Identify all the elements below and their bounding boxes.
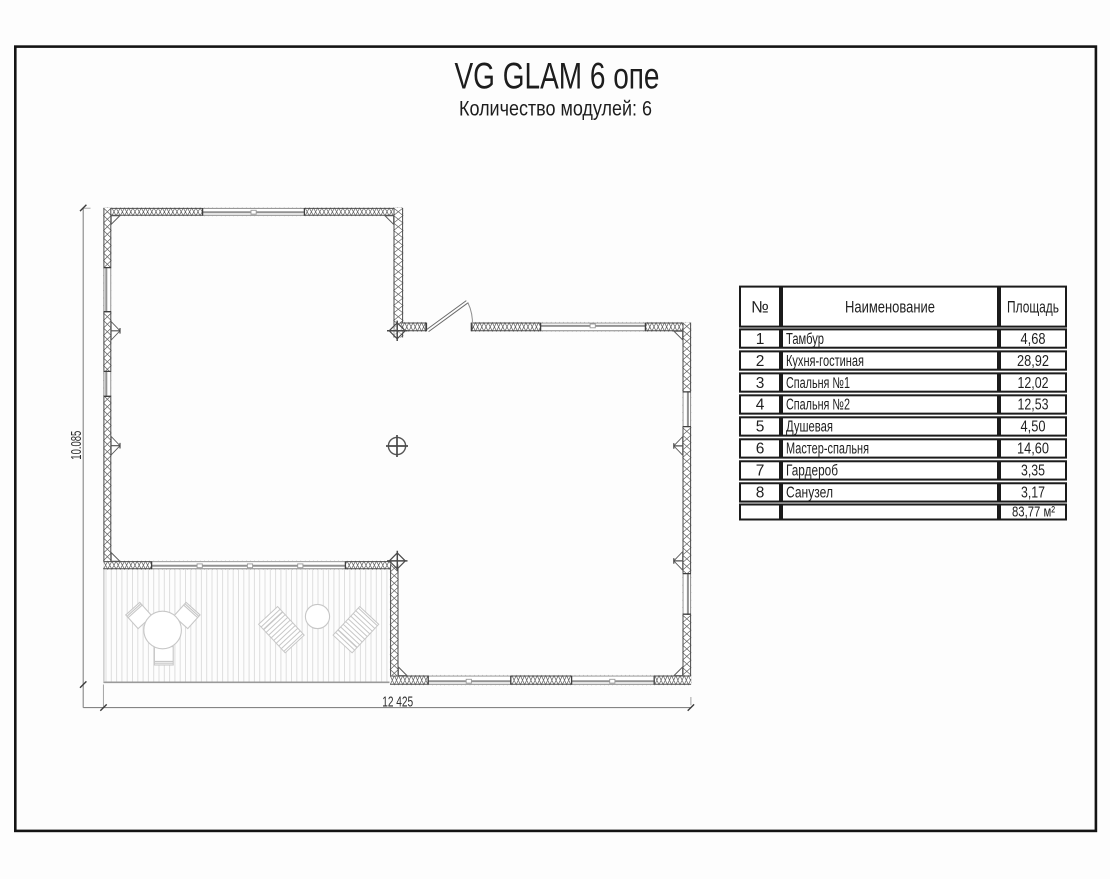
svg-text:№: № (751, 299, 769, 317)
svg-text:4: 4 (756, 397, 765, 414)
svg-text:14,60: 14,60 (1017, 441, 1049, 458)
svg-text:5: 5 (756, 419, 765, 436)
svg-text:8: 8 (756, 485, 765, 502)
svg-text:3,35: 3,35 (1021, 463, 1045, 480)
svg-text:Количество модулей: 6: Количество модулей: 6 (459, 96, 652, 120)
svg-text:Спальня №1: Спальня №1 (786, 375, 850, 392)
svg-text:12 425: 12 425 (382, 693, 413, 710)
svg-text:Спальня №2: Спальня №2 (786, 397, 850, 414)
svg-text:Мастер-спальня: Мастер-спальня (786, 441, 869, 458)
svg-text:4,68: 4,68 (1021, 331, 1046, 348)
svg-text:28,92: 28,92 (1017, 353, 1049, 370)
svg-text:6: 6 (756, 441, 765, 458)
svg-text:2: 2 (756, 353, 765, 370)
svg-text:Санузел: Санузел (786, 485, 833, 502)
svg-text:7: 7 (756, 463, 765, 480)
svg-text:Тамбур: Тамбур (786, 331, 824, 348)
svg-text:Наименование: Наименование (845, 299, 935, 317)
svg-text:Гардероб: Гардероб (786, 463, 838, 480)
svg-text:1: 1 (756, 331, 765, 348)
svg-text:10.085: 10.085 (69, 431, 85, 460)
svg-text:12,02: 12,02 (1018, 375, 1049, 392)
svg-text:Душевая: Душевая (786, 419, 833, 436)
svg-text:VG GLAM 6 опе: VG GLAM 6 опе (455, 55, 660, 97)
svg-text:12,53: 12,53 (1018, 397, 1049, 414)
svg-text:83,77 м²: 83,77 м² (1012, 504, 1055, 521)
svg-text:4,50: 4,50 (1021, 419, 1046, 436)
svg-text:Кухня-гостиная: Кухня-гостиная (786, 353, 864, 370)
svg-text:3: 3 (756, 375, 765, 392)
svg-text:Площадь: Площадь (1007, 299, 1059, 317)
svg-text:3,17: 3,17 (1021, 485, 1045, 502)
